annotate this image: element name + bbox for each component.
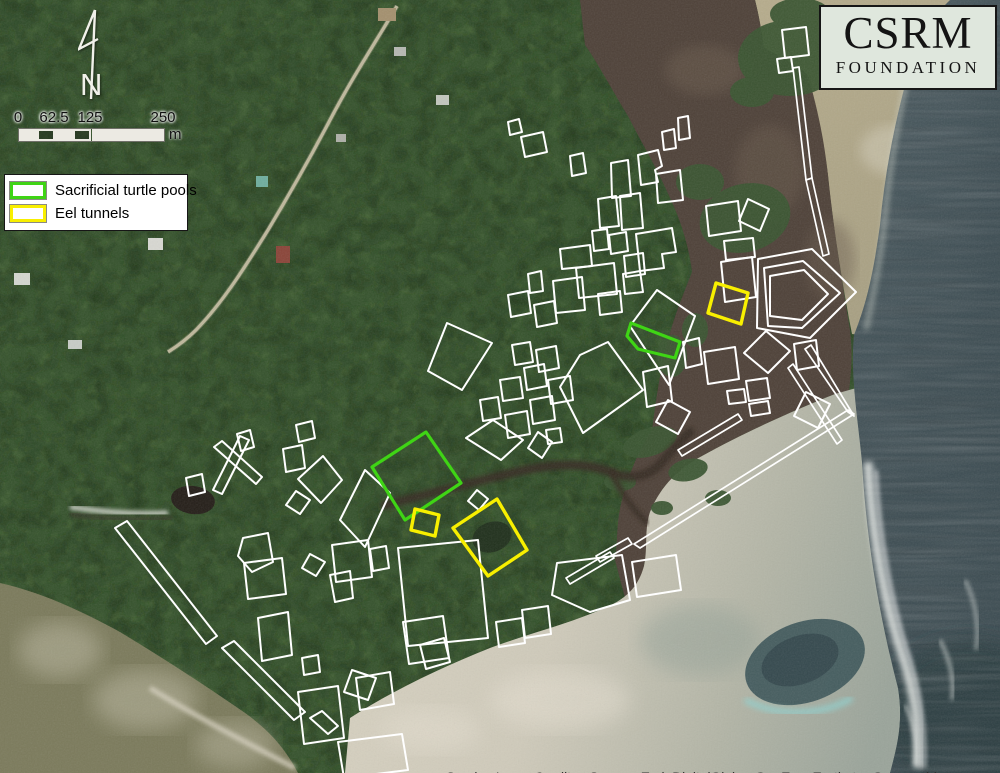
credits-line-1: Service Layer Credits: Source: Esri, Dig… [446, 769, 954, 773]
north-arrow: N [78, 2, 122, 104]
site-outline [186, 474, 205, 496]
site-outline [283, 445, 305, 472]
map-canvas[interactable]: N 0 62.5 125 250 m Sacrificial turtle po… [0, 0, 1000, 773]
site-outline [330, 571, 353, 602]
site-outline [258, 612, 292, 661]
logo-acronym: CSRM [821, 10, 995, 57]
site-outline [560, 342, 643, 433]
site-outline [370, 546, 389, 571]
scale-tick-62-5: 62.5 [39, 109, 68, 126]
site-outline [466, 420, 523, 460]
seawall-outline [678, 414, 742, 456]
site-outline [782, 27, 809, 58]
eel-tunnel-outline [708, 283, 748, 324]
site-outline [338, 734, 408, 773]
scale-segment [55, 129, 73, 141]
scale-bar: 0 62.5 125 250 m [0, 106, 210, 148]
site-outline [638, 150, 662, 185]
site-outline [528, 432, 552, 458]
site-outline [546, 428, 562, 444]
csrm-foundation-logo: CSRM FOUNDATION [819, 5, 997, 90]
site-outline [298, 686, 344, 744]
site-outline [739, 199, 769, 231]
site-outline [706, 201, 741, 236]
eel-tunnel-outline [411, 509, 439, 536]
scale-tick-0: 0 [14, 109, 22, 126]
eel-tunnel-outline [453, 499, 527, 576]
north-arrow-label: N [80, 67, 102, 102]
site-outline [286, 491, 310, 514]
scale-bar-rule [18, 128, 165, 142]
scale-segment [73, 129, 91, 141]
site-outline [777, 57, 793, 73]
site-outline [403, 616, 449, 664]
site-outline [656, 400, 690, 434]
site-outline [524, 364, 547, 390]
site-outline [428, 323, 492, 390]
seawall-outline [793, 67, 812, 180]
logo-subtitle: FOUNDATION [821, 58, 995, 78]
site-outline [746, 378, 770, 401]
site-outline [727, 389, 746, 404]
service-layer-credits: Service Layer Credits: Source: Esri, Dig… [446, 734, 954, 773]
site-outline [496, 618, 525, 647]
site-outline [238, 533, 273, 572]
site-outline [609, 232, 628, 254]
site-outline [521, 132, 547, 157]
site-outline [536, 346, 559, 372]
site-outline [553, 277, 585, 313]
site-outline [302, 655, 320, 675]
scale-unit-label: m [169, 126, 182, 143]
seawall-outline [788, 364, 842, 444]
scale-segment [19, 129, 37, 141]
seawall-outline [806, 178, 829, 256]
site-outline [620, 193, 643, 230]
site-outline [500, 377, 523, 401]
site-outline [678, 116, 690, 140]
site-outline [522, 606, 551, 638]
site-outline [115, 521, 217, 644]
site-outline [598, 196, 619, 228]
site-outline [560, 245, 592, 269]
legend-label: Eel tunnels [55, 205, 129, 222]
site-outline [630, 290, 695, 385]
scale-segment [37, 129, 55, 141]
site-outline [721, 257, 756, 302]
scale-tick-125: 125 [77, 109, 102, 126]
turtle-pool-outline [372, 432, 461, 520]
turtle-pool-outline [627, 323, 680, 358]
site-outline [244, 558, 286, 599]
site-outline [744, 331, 790, 373]
site-outline [632, 555, 681, 597]
legend-item-eel-tunnels: Eel tunnels [5, 202, 187, 225]
scale-segment [92, 129, 165, 141]
site-outline [611, 160, 631, 198]
site-outline [310, 711, 338, 734]
legend: Sacrificial turtle pools Eel tunnels [4, 174, 188, 231]
site-outline [662, 129, 676, 150]
turtle-pool-swatch [10, 182, 46, 199]
site-outline [480, 397, 501, 421]
site-outline [592, 229, 609, 251]
site-outline [623, 271, 643, 294]
site-outline [296, 421, 315, 442]
legend-item-turtle-pools: Sacrificial turtle pools [5, 179, 187, 202]
legend-label: Sacrificial turtle pools [55, 182, 197, 199]
site-outline [749, 401, 770, 416]
site-outline [704, 347, 739, 384]
site-outline [505, 411, 530, 438]
site-outline [508, 291, 531, 317]
site-outline [302, 554, 325, 576]
site-outline [570, 153, 586, 176]
eel-tunnel-swatch [10, 205, 46, 222]
site-outline [534, 301, 557, 327]
site-outline [508, 119, 522, 135]
site-outline [794, 392, 830, 428]
seawall-outline [634, 410, 854, 548]
site-outline [656, 170, 683, 203]
site-outline [512, 342, 533, 365]
site-outline [528, 271, 543, 293]
site-outline [636, 228, 676, 271]
scale-tick-250: 250 [150, 109, 175, 126]
